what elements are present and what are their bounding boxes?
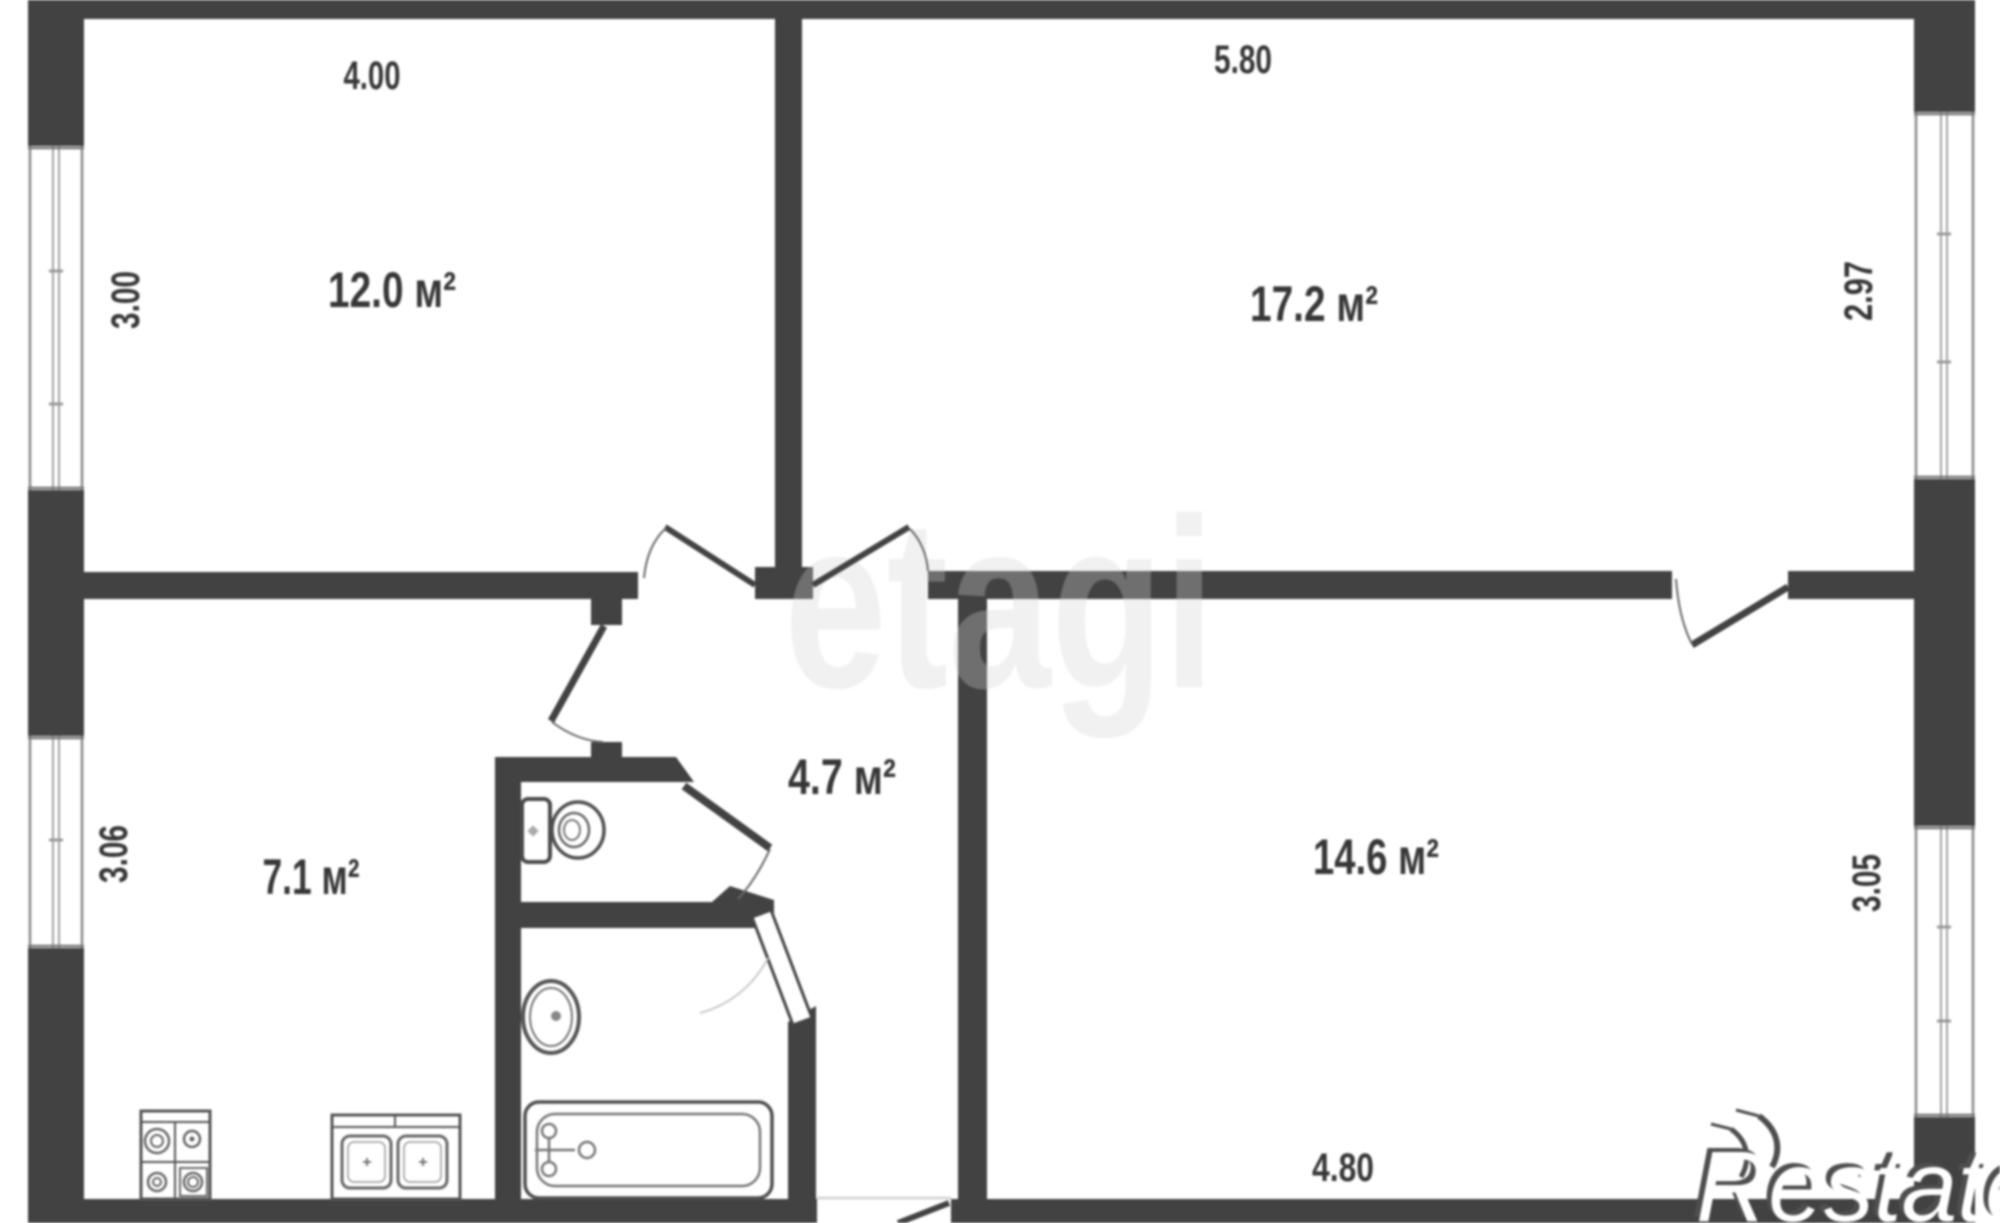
svg-text:3.06: 3.06: [92, 825, 136, 883]
svg-text:2.97: 2.97: [1837, 261, 1881, 321]
svg-text:17.2 м²: 17.2 м²: [1250, 276, 1378, 332]
svg-text:7.1 м²: 7.1 м²: [263, 849, 360, 905]
svg-text:etagi: etagi: [784, 469, 1215, 739]
svg-text:4.00: 4.00: [344, 54, 401, 98]
svg-text:4.80: 4.80: [1312, 1146, 1374, 1190]
svg-text:4.7 м²: 4.7 м²: [788, 749, 896, 805]
svg-text:3.00: 3.00: [104, 271, 148, 329]
svg-text:3.05: 3.05: [1845, 854, 1889, 912]
svg-text:14.6 м²: 14.6 м²: [1313, 829, 1439, 885]
svg-text:12.0 м²: 12.0 м²: [328, 262, 456, 318]
svg-text:Restate: Restate: [1696, 1131, 2000, 1223]
svg-text:5.80: 5.80: [1214, 38, 1272, 82]
